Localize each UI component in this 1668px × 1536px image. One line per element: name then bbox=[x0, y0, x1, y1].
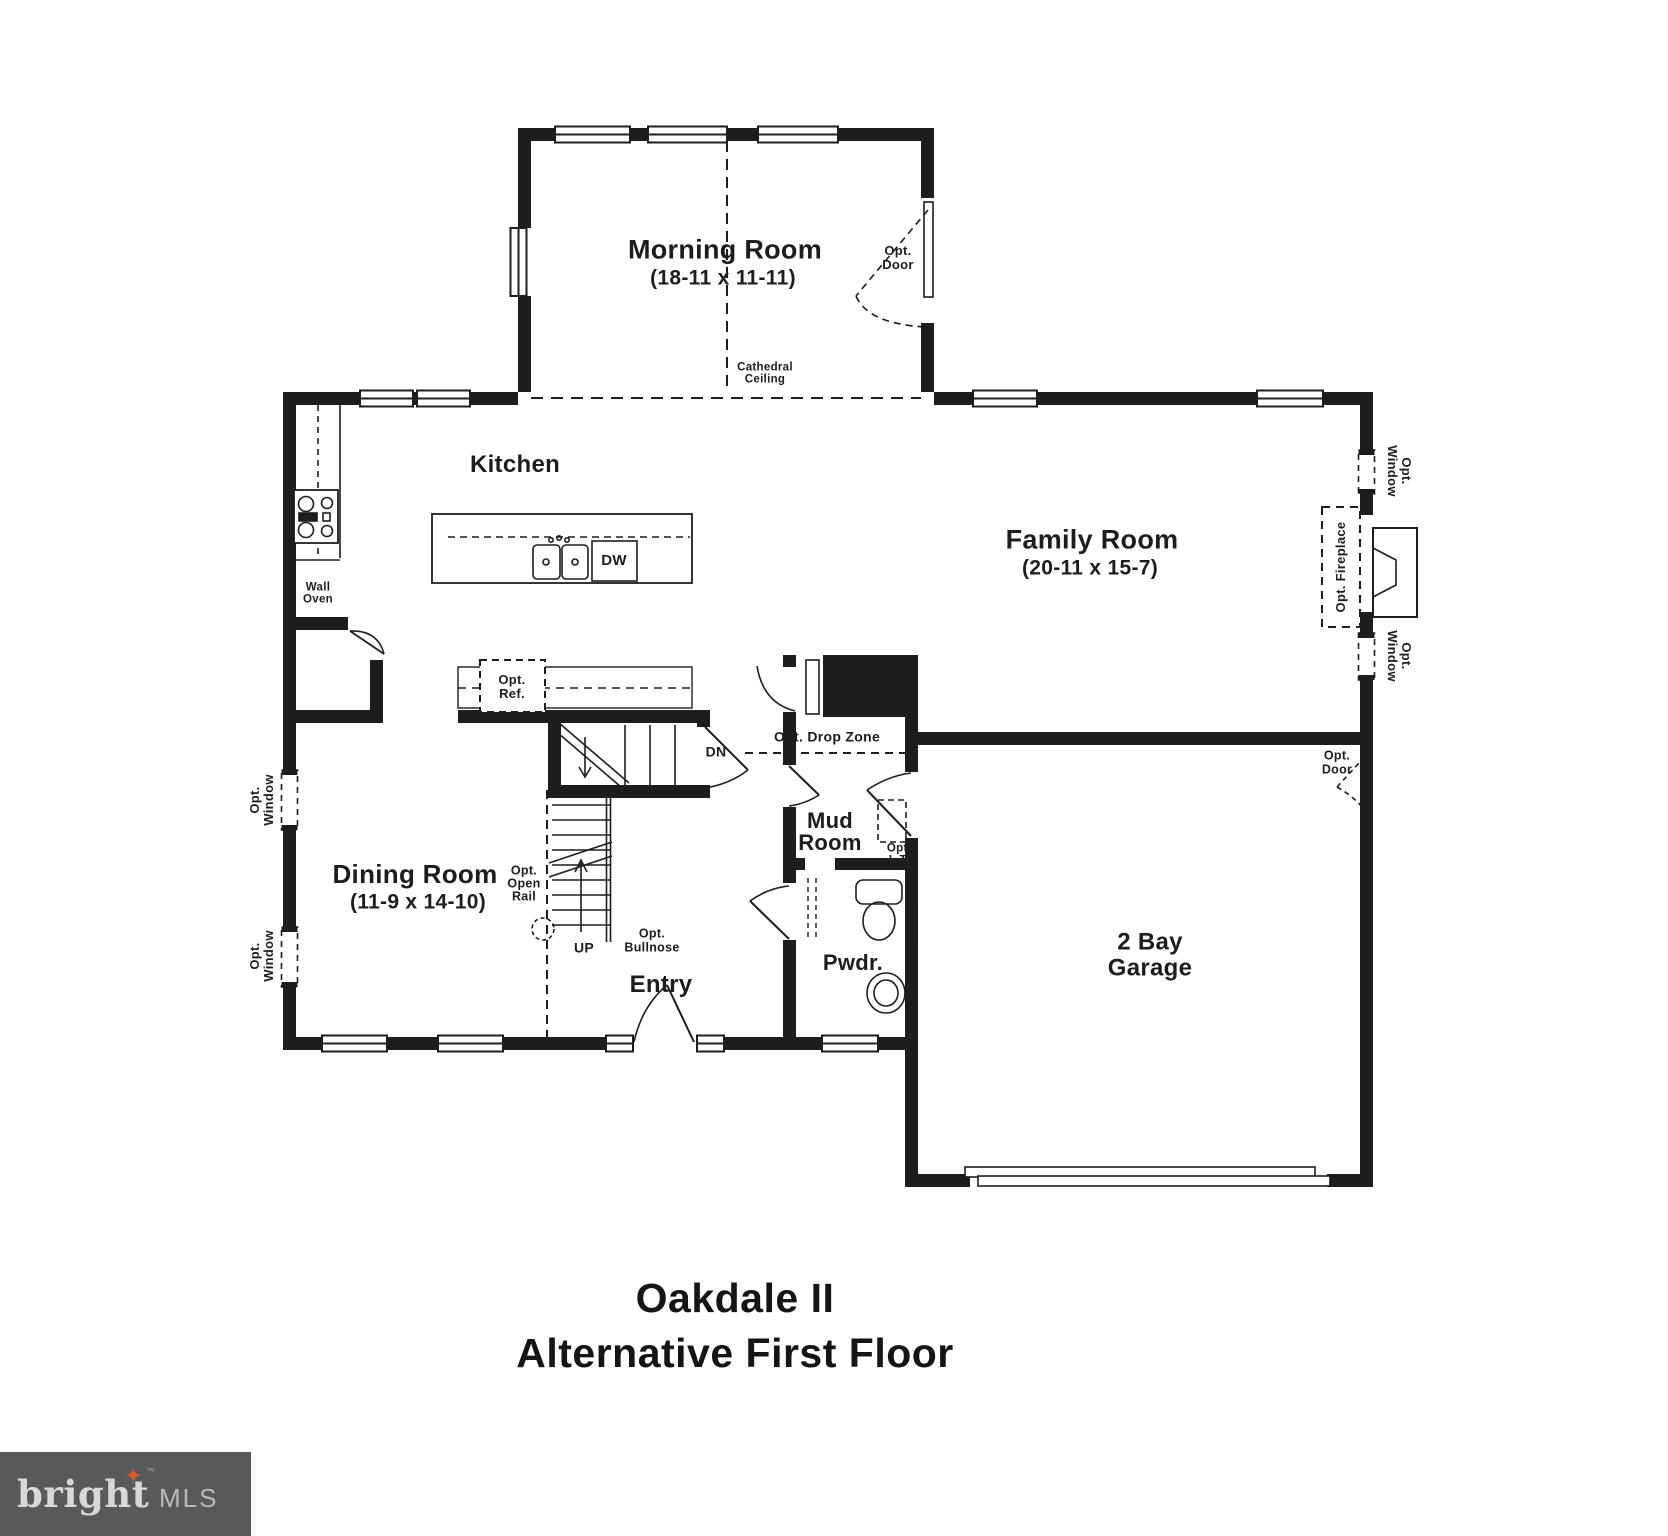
entry-label: Entry bbox=[630, 972, 693, 998]
kitchen-island bbox=[432, 514, 692, 583]
opt-fireplace-label: Opt. Fireplace bbox=[1334, 507, 1348, 627]
plan-name: Oakdale II bbox=[420, 1278, 1050, 1319]
pantry-door bbox=[350, 631, 384, 654]
opt-drop-zone-label: Opt. Drop Zone bbox=[774, 729, 880, 744]
plan-subtitle: Alternative First Floor bbox=[420, 1333, 1050, 1374]
mud-room-label: Mud Room bbox=[788, 810, 872, 854]
opt-open-rail-label: Opt. Open Rail bbox=[500, 864, 548, 903]
family-room-label: Family Room bbox=[1006, 525, 1179, 554]
walls bbox=[283, 128, 1373, 1187]
toilet-bowl bbox=[863, 902, 895, 940]
powder-label: Pwdr. bbox=[823, 951, 883, 975]
garage-label: 2 Bay Garage bbox=[1090, 930, 1210, 983]
cathedral-ceiling-label: Cathedral Ceiling bbox=[726, 362, 804, 387]
family-room-dims: (20-11 x 15-7) bbox=[1022, 558, 1158, 581]
wall-oven-label: Wall Oven bbox=[295, 582, 341, 607]
opt-door-label-garage: Opt. Door bbox=[1316, 750, 1358, 777]
opt-window-label-left-2: Opt. Window bbox=[248, 924, 276, 988]
morning-room-dims: (18-11 x 11-11) bbox=[650, 268, 796, 291]
dishwasher-label: DW bbox=[601, 553, 627, 569]
morning-room-label: Morning Room bbox=[628, 235, 822, 264]
opt-ref-label: Opt. Ref. bbox=[494, 673, 530, 701]
kitchen-label: Kitchen bbox=[470, 452, 560, 478]
bright-mls-logo: bright ✦ ™ MLS bbox=[0, 1452, 251, 1536]
trademark-symbol: ™ bbox=[146, 1466, 155, 1476]
opt-bullnose-label: Opt. Bullnose bbox=[620, 928, 684, 955]
opt-door-label-morning: Opt. Door bbox=[876, 244, 920, 272]
opt-lt-label: Opt. L.T. bbox=[882, 843, 916, 868]
floorplan-page: Morning Room (18-11 x 11-11) Opt. Door C… bbox=[0, 0, 1668, 1536]
opt-window-label-right-1: Opt. Window bbox=[1385, 439, 1413, 503]
garage-door bbox=[965, 1167, 1330, 1186]
dining-room-label: Dining Room bbox=[332, 860, 497, 888]
opt-window-label-right-2: Opt. Window bbox=[1385, 624, 1413, 688]
opt-window-label-left-1: Opt. Window bbox=[248, 768, 276, 832]
four-point-star-icon: ✦ bbox=[124, 1464, 142, 1489]
dn-label: DN bbox=[706, 744, 727, 759]
cooktop bbox=[294, 490, 338, 543]
plan-title: Oakdale II Alternative First Floor bbox=[420, 1278, 1050, 1374]
up-label: UP bbox=[574, 940, 594, 955]
morning-door-panel bbox=[924, 202, 933, 297]
powder-sink bbox=[867, 973, 905, 1013]
toilet-tank bbox=[856, 880, 902, 904]
sink bbox=[533, 545, 560, 579]
doors bbox=[634, 202, 1363, 1042]
bullnose-circle bbox=[532, 918, 554, 940]
brand-suffix: MLS bbox=[159, 1483, 218, 1514]
dining-room-dims: (11-9 x 14-10) bbox=[350, 892, 486, 915]
